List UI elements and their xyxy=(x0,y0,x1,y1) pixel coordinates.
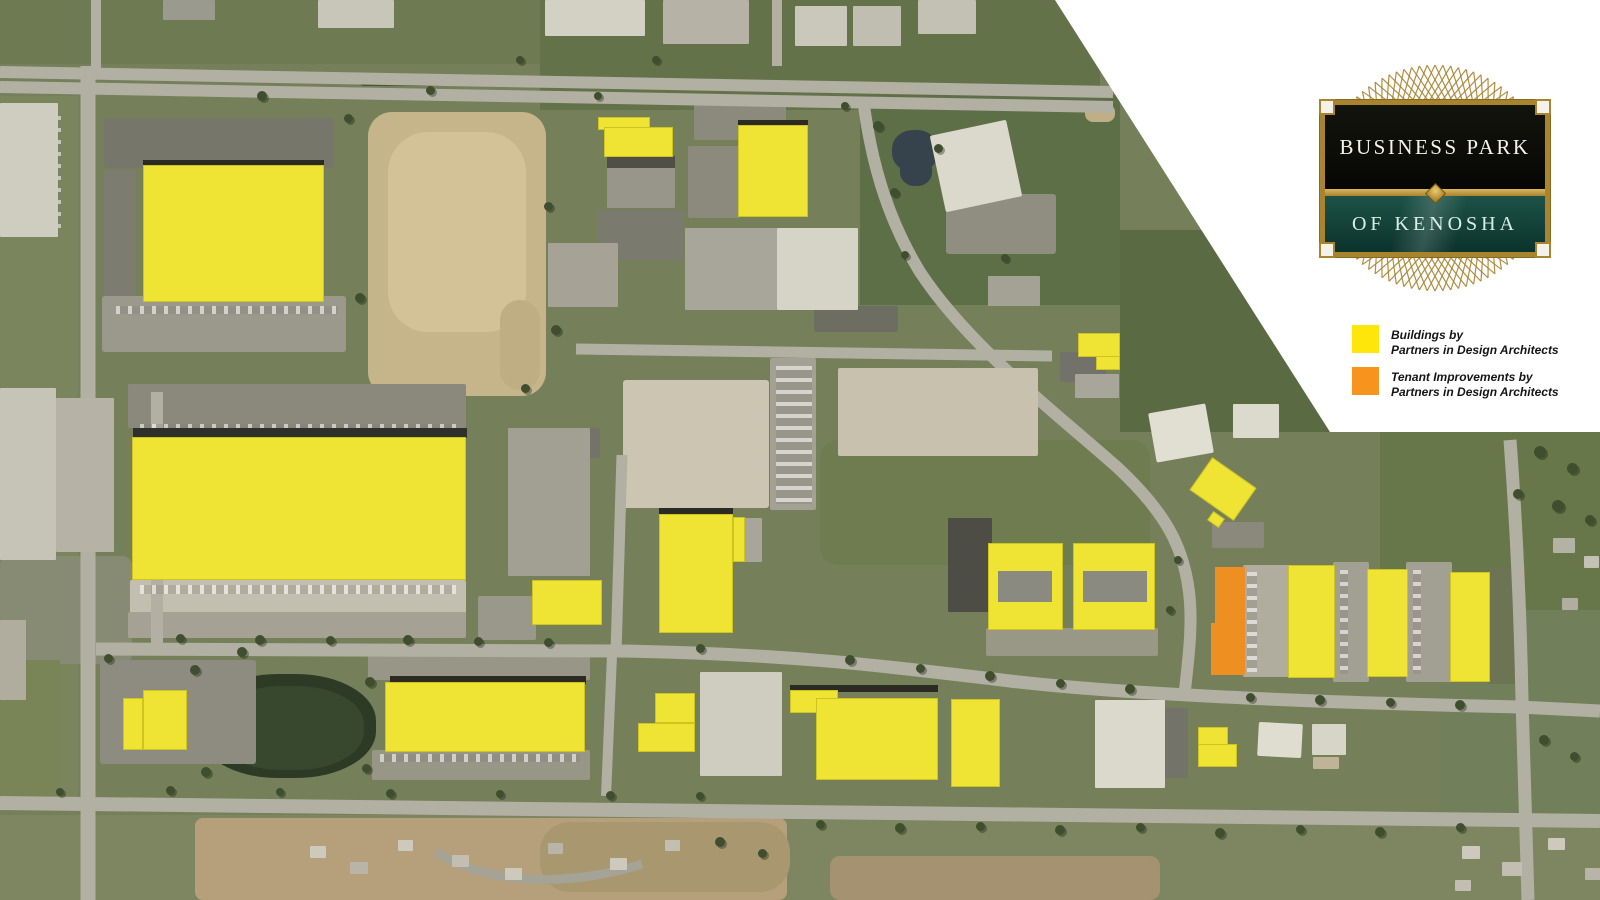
tree xyxy=(1166,606,1174,614)
tree xyxy=(845,655,855,665)
building xyxy=(663,0,749,44)
building xyxy=(163,0,215,20)
logo-corner-icon xyxy=(1319,242,1335,258)
legend-label: Buildings by Partners in Design Architec… xyxy=(1391,325,1559,357)
legend-item-tenant-improvements: Tenant Improvements by Partners in Desig… xyxy=(1352,367,1559,399)
tree xyxy=(985,671,995,681)
tree xyxy=(544,638,553,647)
tree xyxy=(276,788,284,796)
tree xyxy=(1246,693,1255,702)
highlighted-building-yellow xyxy=(816,698,938,780)
tree xyxy=(237,647,247,657)
tree xyxy=(1386,698,1395,707)
tree xyxy=(544,202,553,211)
tree xyxy=(696,792,704,800)
building xyxy=(610,858,627,870)
building xyxy=(398,840,413,851)
highlighted-building-yellow xyxy=(1288,565,1335,678)
tree xyxy=(104,654,113,663)
tree xyxy=(1375,827,1385,837)
building xyxy=(1502,862,1522,876)
highlighted-building-yellow xyxy=(132,437,466,580)
logo-line1: BUSINESS PARK xyxy=(1339,135,1530,160)
building xyxy=(1553,538,1575,553)
highlighted-building-orange xyxy=(1211,623,1245,675)
highlighted-building-orange xyxy=(1215,567,1245,625)
tree xyxy=(521,384,530,393)
highlighted-building-yellow xyxy=(143,690,187,750)
loading-dock-strip xyxy=(1413,570,1421,674)
tree xyxy=(1455,700,1465,710)
building xyxy=(1257,722,1303,758)
tree xyxy=(516,56,524,64)
highlighted-building-yellow xyxy=(385,682,585,752)
building xyxy=(548,843,563,854)
highlighted-building-yellow xyxy=(143,165,324,302)
highlighted-building-yellow xyxy=(1367,569,1408,677)
building xyxy=(1313,757,1339,769)
tree xyxy=(474,637,483,646)
building xyxy=(548,243,618,307)
tree xyxy=(758,849,767,858)
logo-corner-icon xyxy=(1535,99,1551,115)
tree xyxy=(841,102,849,110)
tree xyxy=(255,635,265,645)
tree xyxy=(895,823,905,833)
tree xyxy=(1552,500,1564,512)
tree xyxy=(1513,489,1523,499)
loading-dock-strip xyxy=(380,754,580,762)
building xyxy=(0,103,58,237)
legend-line: Buildings by xyxy=(1391,328,1559,343)
building-inset xyxy=(998,571,1052,602)
tree xyxy=(166,786,175,795)
building xyxy=(1095,700,1165,788)
building xyxy=(988,276,1040,306)
tree xyxy=(551,325,561,335)
highlighted-building-yellow xyxy=(638,723,695,752)
map-legend: Buildings by Partners in Design Architec… xyxy=(1352,325,1559,409)
highlighted-building-yellow xyxy=(1078,333,1120,357)
tree xyxy=(1001,254,1009,262)
tree xyxy=(873,121,883,131)
building xyxy=(742,518,762,562)
tree xyxy=(365,677,375,687)
logo-title-panel: BUSINESS PARK xyxy=(1325,105,1545,189)
building xyxy=(607,156,675,168)
building xyxy=(318,0,394,28)
logo-board: BUSINESS PARK OF KENOSHA xyxy=(1320,100,1550,257)
building xyxy=(1548,838,1565,850)
logo-corner-icon xyxy=(1535,242,1551,258)
highlighted-building-yellow xyxy=(123,698,143,750)
building xyxy=(700,672,782,776)
business-park-of-kenosha-map: BUSINESS PARK OF KENOSHA Buildings by Pa… xyxy=(0,0,1600,900)
highlighted-building-yellow xyxy=(738,125,808,217)
tree xyxy=(652,56,660,64)
tree xyxy=(1315,695,1325,705)
building xyxy=(1562,598,1578,610)
highlighted-building-yellow xyxy=(532,580,602,625)
legend-swatch-yellow xyxy=(1352,325,1379,353)
highlighted-building-yellow xyxy=(733,517,745,562)
tree xyxy=(1174,556,1182,564)
road xyxy=(1510,440,1528,900)
building xyxy=(0,388,56,560)
tree xyxy=(176,634,185,643)
tree xyxy=(1570,752,1579,761)
tree xyxy=(496,790,504,798)
tree xyxy=(1056,679,1065,688)
highlighted-building-yellow xyxy=(951,699,1000,787)
logo-corner-icon xyxy=(1319,99,1335,115)
tree xyxy=(1055,825,1065,835)
tree xyxy=(344,114,353,123)
road xyxy=(606,655,612,796)
highlighted-building-yellow xyxy=(655,693,695,723)
legend-line: Partners in Design Architects xyxy=(1391,343,1559,358)
tree xyxy=(901,251,909,259)
building xyxy=(0,620,26,700)
tree xyxy=(696,644,705,653)
road xyxy=(616,455,622,652)
tree xyxy=(816,820,825,829)
building xyxy=(930,120,1023,213)
tree xyxy=(1567,463,1578,474)
tree xyxy=(56,788,64,796)
building xyxy=(350,862,368,874)
building xyxy=(838,368,1038,456)
tree xyxy=(916,664,925,673)
building xyxy=(918,0,976,34)
tree xyxy=(257,91,267,101)
building-inset xyxy=(1083,571,1147,602)
logo-line2: OF KENOSHA xyxy=(1352,213,1518,236)
building xyxy=(1312,724,1346,755)
tree xyxy=(403,635,413,645)
tree xyxy=(1456,823,1465,832)
tree xyxy=(606,791,615,800)
building xyxy=(777,228,858,310)
building xyxy=(685,228,777,310)
tree xyxy=(426,86,435,95)
building xyxy=(1455,880,1471,891)
tree xyxy=(1539,735,1549,745)
building xyxy=(853,6,901,46)
highlighted-building-yellow xyxy=(1198,744,1237,767)
building xyxy=(948,518,992,612)
building xyxy=(1585,868,1600,880)
tree xyxy=(362,764,371,773)
building xyxy=(1075,374,1119,398)
tree xyxy=(715,837,725,847)
tree xyxy=(934,144,943,153)
legend-label: Tenant Improvements by Partners in Desig… xyxy=(1391,367,1559,399)
loading-dock-strip xyxy=(140,585,456,594)
tree xyxy=(1136,823,1145,832)
highlighted-building-yellow xyxy=(604,127,673,157)
highlighted-building-yellow xyxy=(1450,572,1490,682)
building xyxy=(1148,403,1214,462)
loading-dock-strip xyxy=(776,366,812,504)
tree xyxy=(355,293,365,303)
tree xyxy=(890,188,899,197)
tree xyxy=(386,789,395,798)
tree xyxy=(594,92,602,100)
legend-line: Partners in Design Architects xyxy=(1391,385,1559,400)
loading-dock-strip xyxy=(1247,572,1257,672)
building xyxy=(1462,846,1480,859)
highlighted-building-yellow xyxy=(1096,356,1120,370)
tree xyxy=(190,665,200,675)
tree xyxy=(326,636,335,645)
building xyxy=(505,868,522,880)
building xyxy=(310,846,326,858)
loading-dock-strip xyxy=(1340,570,1348,674)
building xyxy=(1584,556,1599,568)
tree xyxy=(1585,515,1595,525)
building xyxy=(56,398,114,552)
building xyxy=(508,428,590,576)
legend-swatch-orange xyxy=(1352,367,1379,395)
tree xyxy=(1215,828,1225,838)
highlighted-building-yellow xyxy=(659,514,733,633)
loading-dock-strip xyxy=(116,306,338,314)
road xyxy=(576,349,1052,356)
tree xyxy=(1296,825,1305,834)
road xyxy=(0,803,1600,821)
building xyxy=(665,840,680,851)
tree xyxy=(1534,446,1546,458)
tree xyxy=(201,767,211,777)
legend-line: Tenant Improvements by xyxy=(1391,370,1559,385)
tree xyxy=(976,822,985,831)
building xyxy=(452,855,469,867)
building xyxy=(545,0,645,36)
building xyxy=(795,6,847,46)
building xyxy=(1233,404,1279,438)
legend-item-buildings: Buildings by Partners in Design Architec… xyxy=(1352,325,1559,357)
business-park-logo: BUSINESS PARK OF KENOSHA xyxy=(1320,100,1550,257)
tree xyxy=(1125,684,1135,694)
